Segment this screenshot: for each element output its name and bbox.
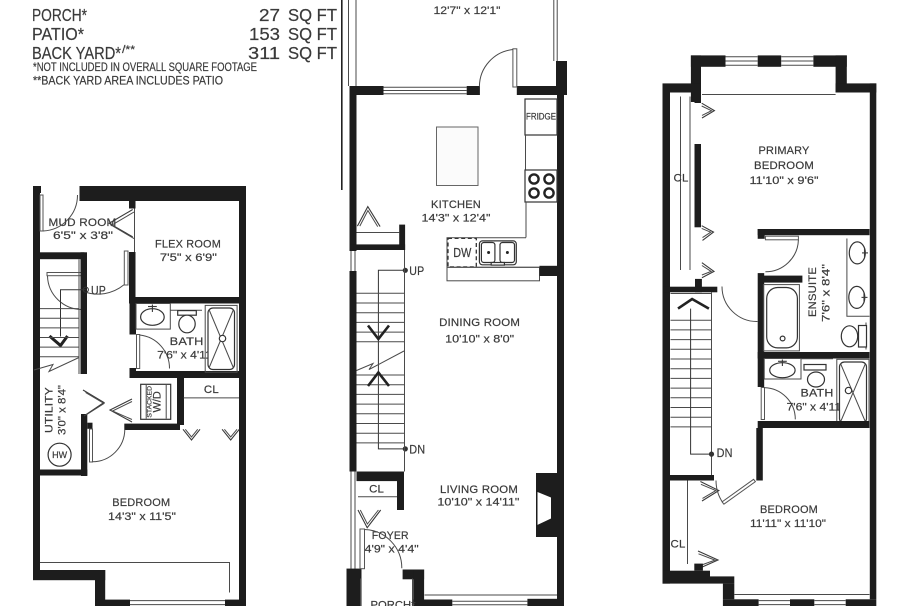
svg-text:153: 153: [249, 24, 280, 44]
svg-text:11'11" x 11'10": 11'11" x 11'10": [750, 518, 826, 530]
svg-text:PORCH*: PORCH*: [32, 5, 87, 25]
svg-text:27: 27: [259, 5, 280, 25]
svg-text:7'5" x 6'9": 7'5" x 6'9": [160, 252, 217, 264]
svg-text:DN: DN: [717, 446, 733, 460]
svg-text:BEDROOM: BEDROOM: [760, 504, 818, 516]
svg-text:10'10" x 8'0": 10'10" x 8'0": [445, 333, 514, 345]
svg-text:BEDROOM: BEDROOM: [754, 160, 814, 172]
svg-text:4'9" x 4'4": 4'9" x 4'4": [365, 544, 419, 556]
svg-text:FRIDGE: FRIDGE: [526, 112, 556, 123]
svg-text:BATH: BATH: [801, 387, 834, 399]
svg-text:CL: CL: [674, 173, 689, 185]
svg-text:UTILITY: UTILITY: [44, 387, 56, 433]
svg-text:PORCH*: PORCH*: [371, 600, 417, 606]
svg-text:DINING ROOM: DINING ROOM: [439, 317, 520, 329]
svg-text:UP: UP: [91, 284, 106, 298]
svg-text:CL: CL: [369, 483, 384, 495]
svg-text:/**: /**: [122, 44, 136, 56]
svg-text:HW: HW: [52, 450, 67, 460]
svg-text:*NOT INCLUDED IN OVERALL SQUAR: *NOT INCLUDED IN OVERALL SQUARE FOOTAGE: [33, 62, 257, 74]
svg-text:SQ FT: SQ FT: [288, 5, 337, 25]
svg-text:UP: UP: [409, 264, 424, 278]
svg-text:SQ FT: SQ FT: [288, 43, 337, 63]
svg-text:DN: DN: [409, 442, 425, 456]
svg-text:PATIO*: PATIO*: [32, 24, 84, 44]
svg-text:W/D: W/D: [152, 391, 164, 412]
svg-text:BEDROOM: BEDROOM: [112, 497, 170, 509]
svg-text:KITCHEN: KITCHEN: [431, 199, 481, 211]
svg-text:DW: DW: [453, 246, 471, 260]
svg-text:CL: CL: [671, 538, 686, 550]
svg-text:3'0" x 8'4": 3'0" x 8'4": [57, 385, 69, 435]
svg-text:311: 311: [248, 43, 280, 63]
svg-text:6'5" x 3'8": 6'5" x 3'8": [53, 230, 113, 242]
svg-text:**BACK YARD AREA INCLUDES PATI: **BACK YARD AREA INCLUDES PATIO: [33, 76, 223, 88]
svg-text:FLEX ROOM: FLEX ROOM: [155, 239, 221, 251]
svg-text:7'6" x 8'4": 7'6" x 8'4": [821, 264, 833, 322]
svg-text:BACK YARD*: BACK YARD*: [32, 43, 121, 63]
svg-text:PRIMARY: PRIMARY: [759, 145, 810, 157]
svg-text:12'7" x 12'1": 12'7" x 12'1": [434, 5, 501, 17]
svg-text:BATH: BATH: [170, 336, 204, 348]
svg-text:11'10" x 9'6": 11'10" x 9'6": [750, 175, 819, 187]
svg-text:SQ FT: SQ FT: [288, 24, 337, 44]
svg-text:LIVING ROOM: LIVING ROOM: [440, 484, 518, 496]
svg-text:14'3" x 12'4": 14'3" x 12'4": [422, 213, 491, 225]
svg-text:CL: CL: [204, 384, 219, 396]
svg-text:7'6" x 4'11": 7'6" x 4'11": [157, 350, 216, 362]
svg-text:10'10" x 14'11": 10'10" x 14'11": [437, 497, 519, 509]
svg-text:14'3" x 11'5": 14'3" x 11'5": [108, 511, 176, 523]
svg-text:ENSUITE: ENSUITE: [807, 267, 819, 317]
